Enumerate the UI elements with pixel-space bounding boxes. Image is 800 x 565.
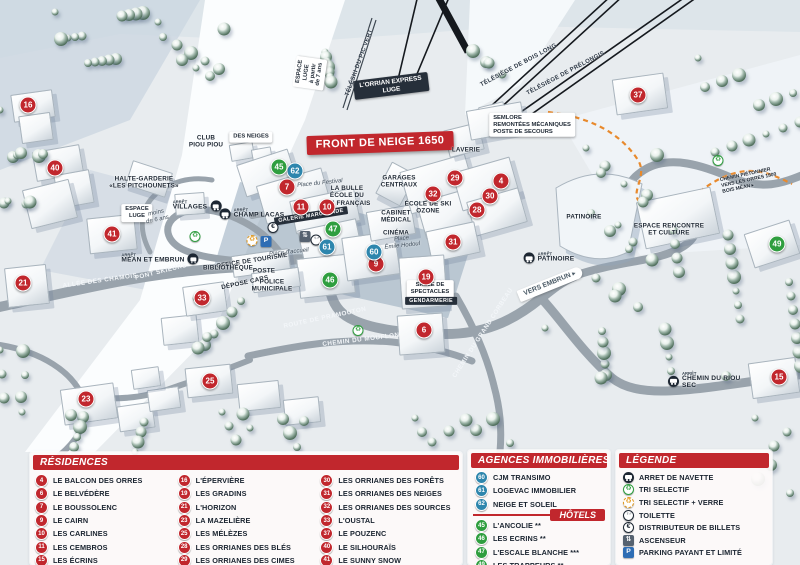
entry-number: 11 [35, 541, 48, 554]
toilet-icon: ♀♂ [623, 510, 634, 521]
legend-entry: 21L'HORIZON [178, 501, 315, 514]
entry-number: 4 [35, 474, 48, 487]
bus-icon [623, 472, 634, 483]
map-marker-40: 40 [47, 160, 64, 177]
entry-number: 30 [320, 474, 333, 487]
entry-label: TRI SELECTIF [639, 485, 689, 494]
panel-residences: RÉSIDENCES 4LE BALCON DES ORRES6LE BELVÉ… [30, 452, 462, 565]
legend-entry: 60CJM TRANSIMO [475, 471, 603, 484]
legend-entry: 16L'ÉPERVIÈRE [178, 474, 315, 487]
map-marker-28: 28 [469, 202, 486, 219]
entry-label: LE BALCON DES ORRES [53, 476, 142, 485]
map-marker-11: 11 [293, 199, 310, 216]
elevator-icon: ⇅ [623, 535, 634, 546]
map-marker-15: 15 [771, 369, 788, 386]
map-marker-32: 32 [425, 186, 442, 203]
map-marker-46: 46 [322, 272, 339, 289]
entry-label: LES MÉLÈZES [196, 529, 248, 538]
entry-number: 40 [320, 541, 333, 554]
entry-label: LES CEMBROS [53, 543, 108, 552]
entry-label: LE BELVÉDÈRE [53, 489, 110, 498]
parking-icon: P [623, 547, 634, 558]
map-marker-7: 7 [279, 179, 296, 196]
entry-number: 62 [475, 498, 488, 511]
entry-label: ASCENSEUR [639, 536, 686, 545]
entry-label: LES ORRIANES DES BLÉS [196, 543, 291, 552]
legend-entry: 33L'OUSTAL [320, 514, 457, 527]
entry-label: L'ANCOLIE ** [493, 521, 541, 530]
map-marker-31: 31 [445, 234, 462, 251]
legend-entry: 19LES GRADINS [178, 487, 315, 500]
entry-label: L'ESCALE BLANCHE *** [493, 548, 579, 557]
map-marker-41: 41 [104, 226, 121, 243]
entry-label: LES ORRIANES DES SOURCES [338, 503, 450, 512]
entry-number: 25 [178, 527, 191, 540]
map-marker-21: 21 [15, 275, 32, 292]
entry-label: LES ORRIANES DES CIMES [196, 556, 295, 565]
legend-entry: 23LA MAZELIÈRE [178, 514, 315, 527]
map-marker-25: 25 [202, 373, 219, 390]
legend-entry: 29LES ORRIANES DES CIMES [178, 554, 315, 565]
legend-entry: 11LES CEMBROS [35, 540, 172, 553]
entry-number: 19 [178, 487, 191, 500]
entry-label: LE BOUSSOLENC [53, 503, 117, 512]
entry-number: 46 [475, 532, 488, 545]
entry-number: 45 [475, 519, 488, 532]
entry-label: DISTRIBUTEUR DE BILLETS [639, 523, 740, 532]
legend-entry: 9LE CAIRN [35, 514, 172, 527]
entry-label: LES GRADINS [196, 489, 247, 498]
legend-entry: 46LES ECRINS ** [475, 532, 603, 545]
entry-label: NEIGE ET SOLEIL [493, 500, 557, 509]
entry-label: TRI SELECTIF + VERRE [639, 498, 724, 507]
legend-entry: 47L'ESCALE BLANCHE *** [475, 545, 603, 558]
map-marker-4: 4 [493, 173, 510, 190]
map-marker-30: 30 [482, 188, 499, 205]
entry-label: LES ORRIANES DES FORÊTS [338, 476, 444, 485]
legend-entry: ⇅ASCENSEUR [623, 534, 765, 547]
residences-list: 4LE BALCON DES ORRES6LE BELVÉDÈRE7LE BOU… [33, 470, 459, 565]
legend-entry: 40LE SILHOURAÏS [320, 540, 457, 553]
legend-entry: 61LOGEVAC IMMOBILIER [475, 484, 603, 497]
residences-column: 30LES ORRIANES DES FORÊTS31LES ORRIANES … [320, 474, 457, 565]
legend-entry: 25LES MÉLÈZES [178, 527, 315, 540]
entry-label: LES ECRINS ** [493, 534, 546, 543]
entry-number: 21 [178, 501, 191, 514]
agences-list: 60CJM TRANSIMO61LOGEVAC IMMOBILIER62NEIG… [471, 468, 607, 511]
entry-number: 16 [178, 474, 191, 487]
entry-label: LOGEVAC IMMOBILIER [493, 486, 576, 495]
entry-number: 61 [475, 484, 488, 497]
entry-number: 6 [35, 487, 48, 500]
recycle-green-icon: ♻ [623, 484, 634, 495]
hotels-list: 45L'ANCOLIE **46LES ECRINS **47L'ESCALE … [471, 516, 607, 565]
legend-entry: ARRET DE NAVETTE [623, 471, 765, 484]
entry-label: LES ORRIANES DES NEIGES [338, 489, 442, 498]
panel-residences-title: RÉSIDENCES [33, 455, 459, 470]
entry-number: 41 [320, 554, 333, 565]
legend-entry: 30LES ORRIANES DES FORÊTS [320, 474, 457, 487]
legend-entry: 32LES ORRIANES DES SOURCES [320, 501, 457, 514]
entry-label: L'OUSTAL [338, 516, 374, 525]
entry-label: LE POUZENC [338, 529, 386, 538]
legende-list: ARRET DE NAVETTE♻TRI SELECTIF♻TRI SELECT… [619, 468, 769, 559]
legend-entry: 6LE BELVÉDÈRE [35, 487, 172, 500]
legend-entry: 28LES ORRIANES DES BLÉS [178, 540, 315, 553]
hotels-divider: HÔTELS [473, 514, 605, 516]
map-marker-23: 23 [78, 391, 95, 408]
legend-entry: 15LES ÉCRINS [35, 554, 172, 565]
legend-entry: 37LE POUZENC [320, 527, 457, 540]
entry-number: 33 [320, 514, 333, 527]
residences-column: 4LE BALCON DES ORRES6LE BELVÉDÈRE7LE BOU… [35, 474, 172, 565]
map-marker-29: 29 [447, 170, 464, 187]
map-marker-62: 62 [287, 163, 304, 180]
entry-number: 23 [178, 514, 191, 527]
entry-number: 49 [475, 559, 488, 565]
legend-entry: 7LE BOUSSOLENC [35, 501, 172, 514]
legend-entry: €DISTRIBUTEUR DE BILLETS [623, 521, 765, 534]
entry-label: LA MAZELIÈRE [196, 516, 251, 525]
entry-number: 28 [178, 541, 191, 554]
legend-entry: ♻TRI SELECTIF + VERRE [623, 496, 765, 509]
legend-entry: 4LE BALCON DES ORRES [35, 474, 172, 487]
legend-entry: 10LES CARLINES [35, 527, 172, 540]
map-marker-60: 60 [366, 244, 383, 261]
entry-number: 10 [35, 527, 48, 540]
entry-label: L'ÉPERVIÈRE [196, 476, 245, 485]
entry-number: 37 [320, 527, 333, 540]
entry-label: LES CARLINES [53, 529, 108, 538]
residences-column: 16L'ÉPERVIÈRE19LES GRADINS21L'HORIZON23L… [178, 474, 315, 565]
map-marker-61: 61 [319, 239, 336, 256]
entry-label: ARRET DE NAVETTE [639, 473, 713, 482]
map-marker-49: 49 [769, 236, 786, 253]
map-marker-47: 47 [325, 221, 342, 238]
legend-entry: ♻TRI SELECTIF [623, 484, 765, 497]
entry-label: PARKING PAYANT ET LIMITÉ [639, 548, 742, 557]
resort-map: FRONT DE NEIGE 1650L'ORRIAN EXPRESS LUGE… [0, 0, 800, 565]
entry-number: 32 [320, 501, 333, 514]
entry-number: 31 [320, 487, 333, 500]
map-marker-45: 45 [271, 159, 288, 176]
euro-icon: € [623, 522, 634, 533]
entry-number: 7 [35, 501, 48, 514]
panel-legende: LÉGENDE ARRET DE NAVETTE♻TRI SELECTIF♻TR… [616, 450, 772, 565]
entry-label: TOILETTE [639, 511, 675, 520]
entry-label: LE SUNNY SNOW [338, 556, 401, 565]
panel-agences: AGENCES IMMOBILIÈRES 60CJM TRANSIMO61LOG… [468, 450, 610, 565]
map-marker-6: 6 [416, 322, 433, 339]
entry-label: LES TRAPPEURS ** [493, 561, 564, 565]
entry-number: 60 [475, 471, 488, 484]
map-marker-19: 19 [418, 269, 435, 286]
entry-label: CJM TRANSIMO [493, 473, 551, 482]
recycle-yellow-icon: ♻ [623, 497, 634, 508]
entry-label: LE CAIRN [53, 516, 88, 525]
hotels-title: HÔTELS [550, 509, 605, 521]
entry-number: 15 [35, 554, 48, 565]
legend-entry: ♀♂TOILETTE [623, 509, 765, 522]
map-marker-16: 16 [20, 97, 37, 114]
map-marker-37: 37 [630, 87, 647, 104]
legend-entry: 49LES TRAPPEURS ** [475, 559, 603, 565]
entry-number: 47 [475, 546, 488, 559]
legend-entry: 41LE SUNNY SNOW [320, 554, 457, 565]
entry-label: LE SILHOURAÏS [338, 543, 396, 552]
entry-label: L'HORIZON [196, 503, 237, 512]
entry-number: 9 [35, 514, 48, 527]
entry-number: 29 [178, 554, 191, 565]
panel-agences-title: AGENCES IMMOBILIÈRES [471, 453, 607, 468]
map-marker-33: 33 [194, 290, 211, 307]
legend-entry: PPARKING PAYANT ET LIMITÉ [623, 547, 765, 560]
entry-label: LES ÉCRINS [53, 556, 98, 565]
legend-entry: 31LES ORRIANES DES NEIGES [320, 487, 457, 500]
panel-legende-title: LÉGENDE [619, 453, 769, 468]
map-marker-10: 10 [319, 199, 336, 216]
